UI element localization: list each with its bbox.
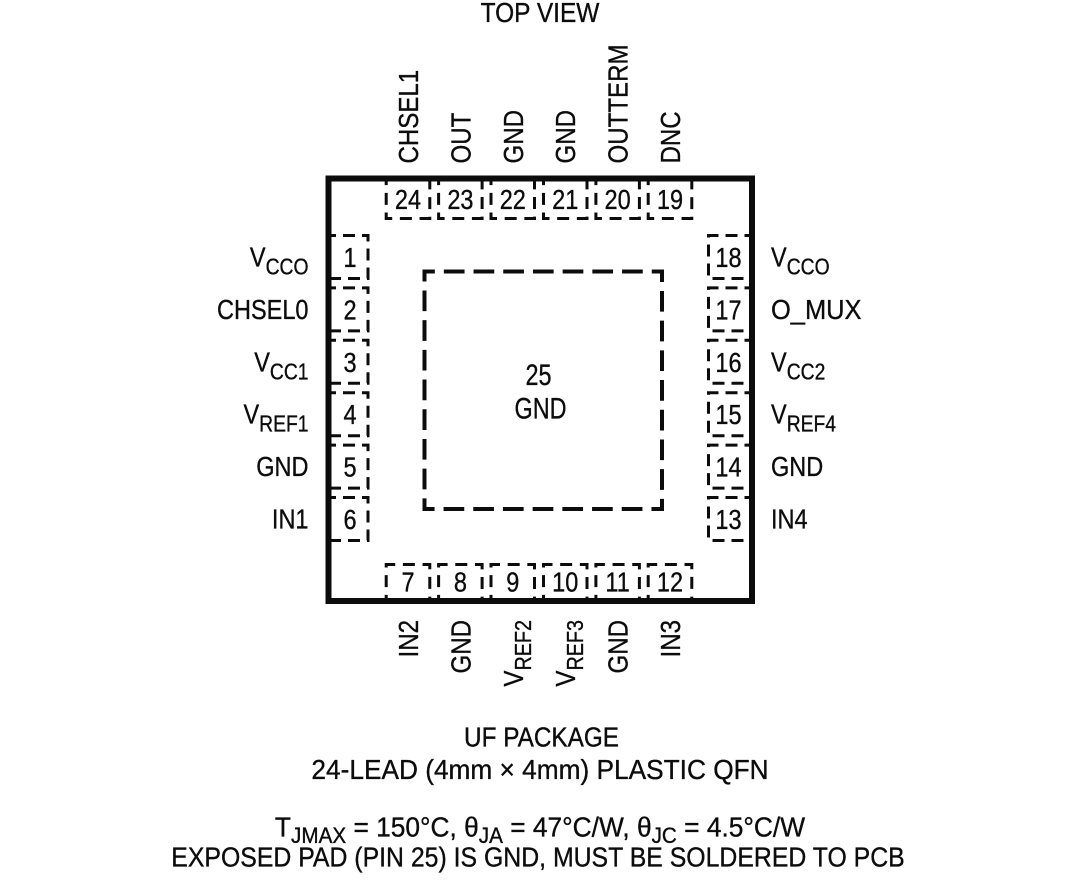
svg-text:20: 20 bbox=[605, 185, 631, 215]
svg-text:O_MUX: O_MUX bbox=[771, 294, 862, 325]
svg-text:VREF3: VREF3 bbox=[549, 620, 588, 687]
svg-text:1: 1 bbox=[343, 243, 356, 273]
svg-text:2: 2 bbox=[343, 296, 356, 326]
svg-text:VREF2: VREF2 bbox=[497, 620, 536, 687]
svg-text:17: 17 bbox=[715, 296, 741, 326]
svg-text:13: 13 bbox=[715, 505, 741, 535]
svg-text:VCCO: VCCO bbox=[771, 243, 830, 280]
svg-text:CHSEL0: CHSEL0 bbox=[217, 295, 308, 325]
svg-text:22: 22 bbox=[500, 185, 526, 215]
svg-text:21: 21 bbox=[552, 185, 578, 215]
svg-text:15: 15 bbox=[715, 400, 741, 430]
svg-text:18: 18 bbox=[715, 243, 741, 273]
svg-text:DNC: DNC bbox=[654, 111, 686, 163]
svg-text:24: 24 bbox=[395, 185, 421, 215]
svg-text:12: 12 bbox=[657, 568, 683, 598]
svg-text:OUTTERM: OUTTERM bbox=[602, 44, 634, 163]
svg-text:VREF1: VREF1 bbox=[243, 400, 308, 437]
svg-text:GND: GND bbox=[256, 452, 308, 482]
svg-text:7: 7 bbox=[401, 568, 414, 598]
svg-text:TOP VIEW: TOP VIEW bbox=[481, 0, 600, 28]
svg-text:IN1: IN1 bbox=[272, 505, 309, 535]
svg-text:VCC1: VCC1 bbox=[254, 347, 308, 384]
svg-text:4: 4 bbox=[343, 400, 356, 430]
svg-text:GND: GND bbox=[771, 452, 823, 482]
svg-text:16: 16 bbox=[715, 348, 741, 378]
svg-text:EXPOSED PAD (PIN 25) IS GND, M: EXPOSED PAD (PIN 25) IS GND, MUST BE SOL… bbox=[171, 841, 904, 873]
svg-text:9: 9 bbox=[506, 568, 519, 598]
svg-text:CHSEL1: CHSEL1 bbox=[392, 70, 424, 164]
svg-text:IN3: IN3 bbox=[654, 620, 686, 657]
svg-text:25: 25 bbox=[525, 358, 551, 391]
svg-text:GND: GND bbox=[549, 110, 581, 164]
svg-text:VREF4: VREF4 bbox=[771, 400, 836, 437]
svg-text:6: 6 bbox=[343, 505, 356, 535]
svg-text:23: 23 bbox=[447, 185, 473, 215]
svg-text:GND: GND bbox=[515, 392, 567, 425]
svg-text:VCCO: VCCO bbox=[250, 243, 309, 280]
svg-text:24-LEAD (4mm × 4mm) PLASTIC QF: 24-LEAD (4mm × 4mm) PLASTIC QFN bbox=[311, 753, 768, 785]
svg-text:19: 19 bbox=[657, 185, 683, 215]
svg-text:10: 10 bbox=[552, 568, 578, 598]
svg-text:11: 11 bbox=[605, 568, 629, 598]
svg-text:GND: GND bbox=[602, 620, 634, 674]
svg-text:OUT: OUT bbox=[445, 113, 477, 164]
svg-text:8: 8 bbox=[454, 568, 467, 598]
svg-text:GND: GND bbox=[445, 620, 477, 674]
svg-text:GND: GND bbox=[497, 110, 529, 164]
svg-text:3: 3 bbox=[343, 348, 356, 378]
svg-text:IN2: IN2 bbox=[392, 620, 424, 657]
svg-text:IN4: IN4 bbox=[771, 505, 808, 535]
svg-text:14: 14 bbox=[715, 453, 741, 483]
svg-text:UF PACKAGE: UF PACKAGE bbox=[464, 721, 619, 753]
svg-text:5: 5 bbox=[343, 453, 356, 483]
svg-text:VCC2: VCC2 bbox=[771, 347, 825, 384]
